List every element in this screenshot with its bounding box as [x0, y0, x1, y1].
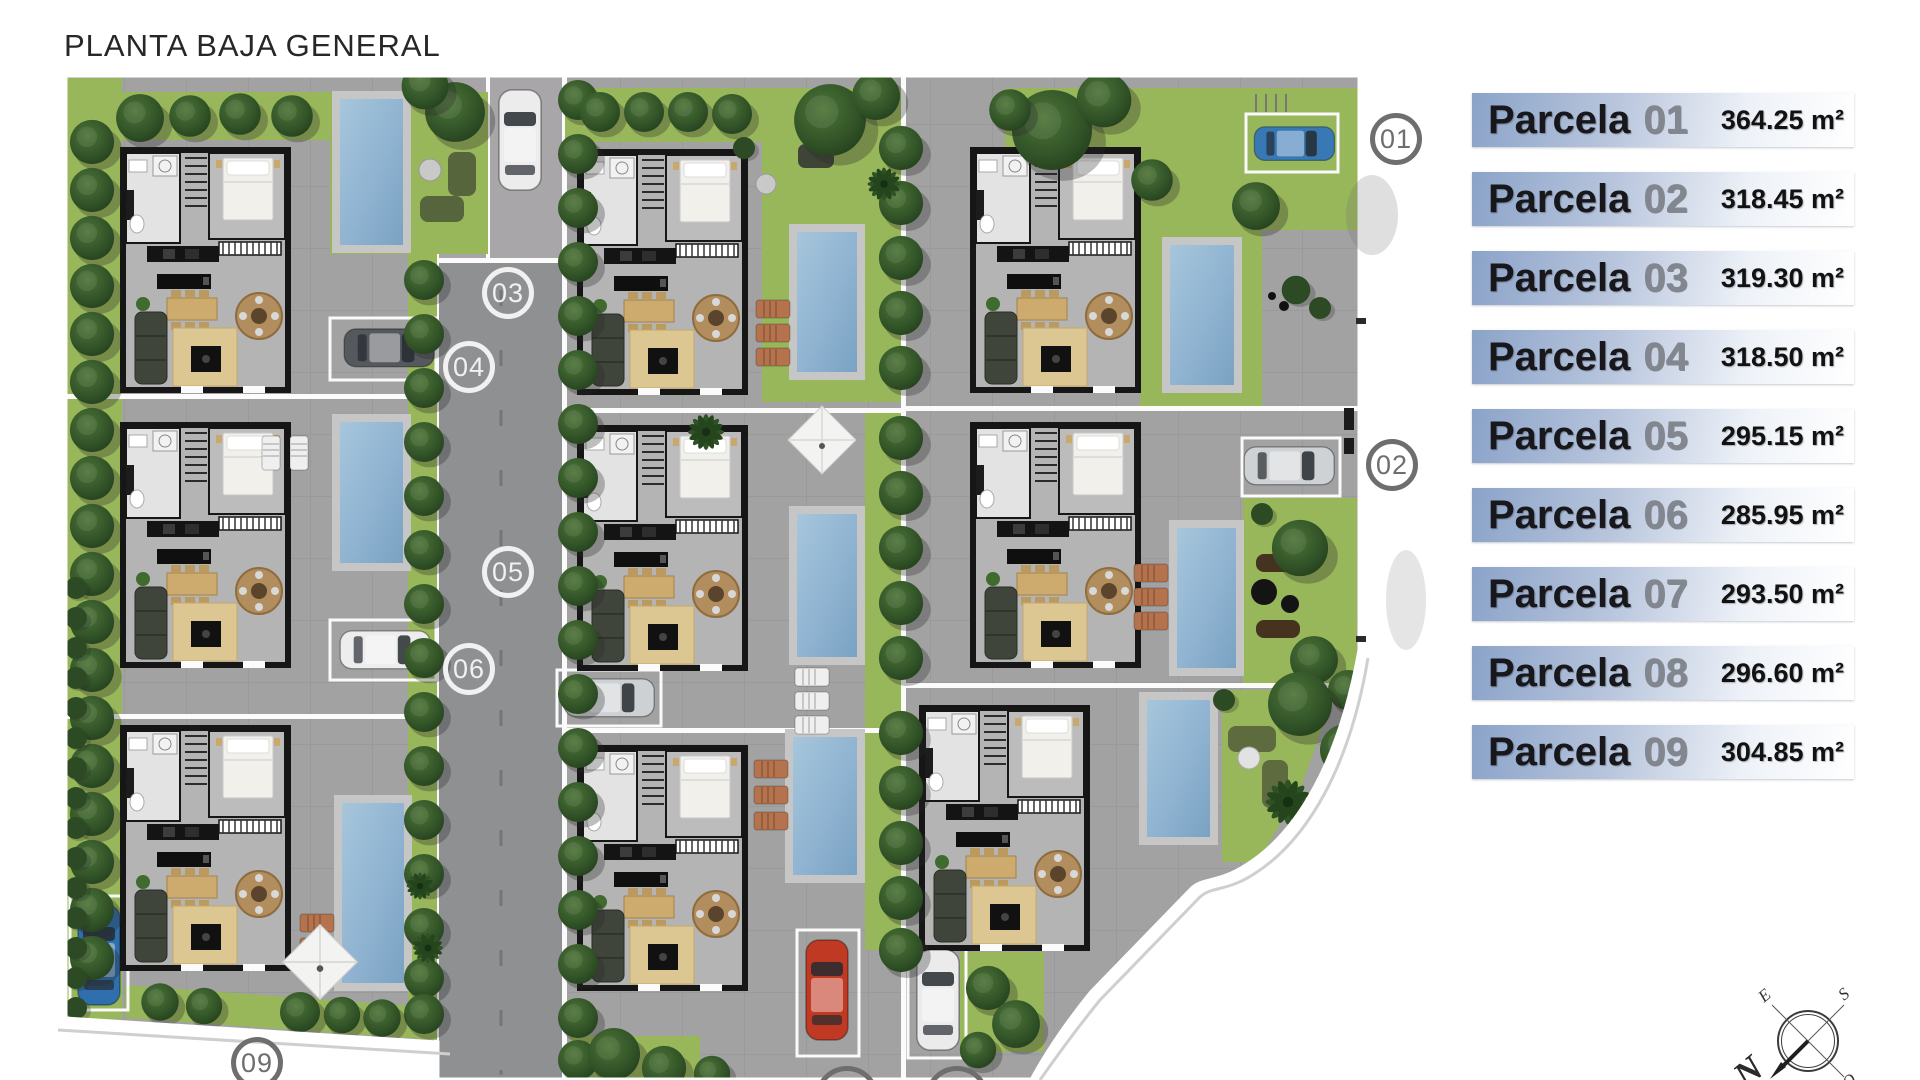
legend-row: Parcela 09 304.85 m² [1472, 725, 1854, 779]
pool [793, 737, 857, 875]
parcel-label: Parcela [1488, 177, 1630, 222]
site-block [65, 63, 1381, 1080]
legend-row: Parcela 01 364.25 m² [1472, 93, 1854, 147]
house [580, 152, 745, 395]
marker-parcel-01: 01 [1370, 113, 1422, 165]
compass-north-label: N [1725, 1046, 1773, 1080]
house [580, 748, 745, 991]
pool [797, 514, 857, 657]
legend-row: Parcela 02 318.45 m² [1472, 172, 1854, 226]
parcel-number: 02 [1643, 177, 1688, 222]
legend-row: Parcela 04 318.50 m² [1472, 330, 1854, 384]
parcel-label: Parcela [1488, 335, 1630, 380]
parcel-number: 06 [1643, 493, 1688, 538]
page: N E S O PLANTA BAJA GENERAL Parcela 01 3… [0, 0, 1920, 1080]
pool [1147, 700, 1210, 837]
pool [340, 422, 403, 563]
parcel-area: 364.25 m² [1721, 105, 1844, 136]
parcel-area: 285.95 m² [1721, 500, 1844, 531]
car-silver [1244, 447, 1334, 485]
pool [1177, 528, 1236, 668]
pool [340, 99, 403, 245]
legend-row: Parcela 03 319.30 m² [1472, 251, 1854, 305]
parcel-label: Parcela [1488, 730, 1630, 775]
house [922, 708, 1087, 951]
house [580, 428, 745, 671]
compass-east-label: E [1754, 984, 1775, 1006]
parcel-label: Parcela [1488, 651, 1630, 696]
parcel-number: 08 [1643, 651, 1688, 696]
pool [797, 232, 857, 372]
marker-parcel-03: 03 [482, 267, 534, 319]
house [973, 425, 1138, 668]
compass-rose: N E S O [1725, 984, 1860, 1080]
parcel-area: 293.50 m² [1721, 579, 1844, 610]
marker-parcel-06: 06 [443, 643, 495, 695]
car-blue [1254, 127, 1334, 161]
pool [1170, 245, 1234, 385]
legend-row: Parcela 07 293.50 m² [1472, 567, 1854, 621]
marker-parcel-02: 02 [1366, 439, 1418, 491]
parcel-area: 319.30 m² [1721, 263, 1844, 294]
compass-west-label: O [1838, 1070, 1860, 1080]
parcel-legend: Parcela 01 364.25 m² Parcela 02 318.45 m… [1472, 93, 1854, 779]
marker-parcel-04: 04 [443, 341, 495, 393]
marker-parcel-05: 05 [482, 546, 534, 598]
house [123, 150, 288, 393]
parcel-number: 05 [1643, 414, 1688, 459]
house [123, 728, 288, 971]
legend-row: Parcela 08 296.60 m² [1472, 646, 1854, 700]
parcel-area: 296.60 m² [1721, 658, 1844, 689]
parcel-label: Parcela [1488, 98, 1630, 143]
tree-shadow [1386, 550, 1426, 650]
parcel-label: Parcela [1488, 414, 1630, 459]
legend-row: Parcela 06 285.95 m² [1472, 488, 1854, 542]
houses [123, 150, 1138, 991]
parcel-number: 09 [1643, 730, 1688, 775]
house [973, 150, 1138, 393]
parcel-area: 318.50 m² [1721, 342, 1844, 373]
car-white [499, 90, 541, 190]
compass-south-label: S [1834, 984, 1853, 1004]
parcel-label: Parcela [1488, 256, 1630, 301]
parcel-number: 01 [1643, 98, 1688, 143]
car-red [806, 940, 848, 1040]
north-arrow [1780, 1041, 1808, 1069]
parcel-area: 318.45 m² [1721, 184, 1844, 215]
parcel-number: 03 [1643, 256, 1688, 301]
parcel-number: 04 [1643, 335, 1688, 380]
parcel-label: Parcela [1488, 572, 1630, 617]
parcel-number: 07 [1643, 572, 1688, 617]
legend-row: Parcela 05 295.15 m² [1472, 409, 1854, 463]
marker-parcel-09: 09 [231, 1037, 283, 1080]
parcel-area: 295.15 m² [1721, 421, 1844, 452]
parcel-label: Parcela [1488, 493, 1630, 538]
parcel-area: 304.85 m² [1721, 737, 1844, 768]
page-title: PLANTA BAJA GENERAL [64, 28, 441, 64]
tree-shadow [1346, 175, 1398, 255]
